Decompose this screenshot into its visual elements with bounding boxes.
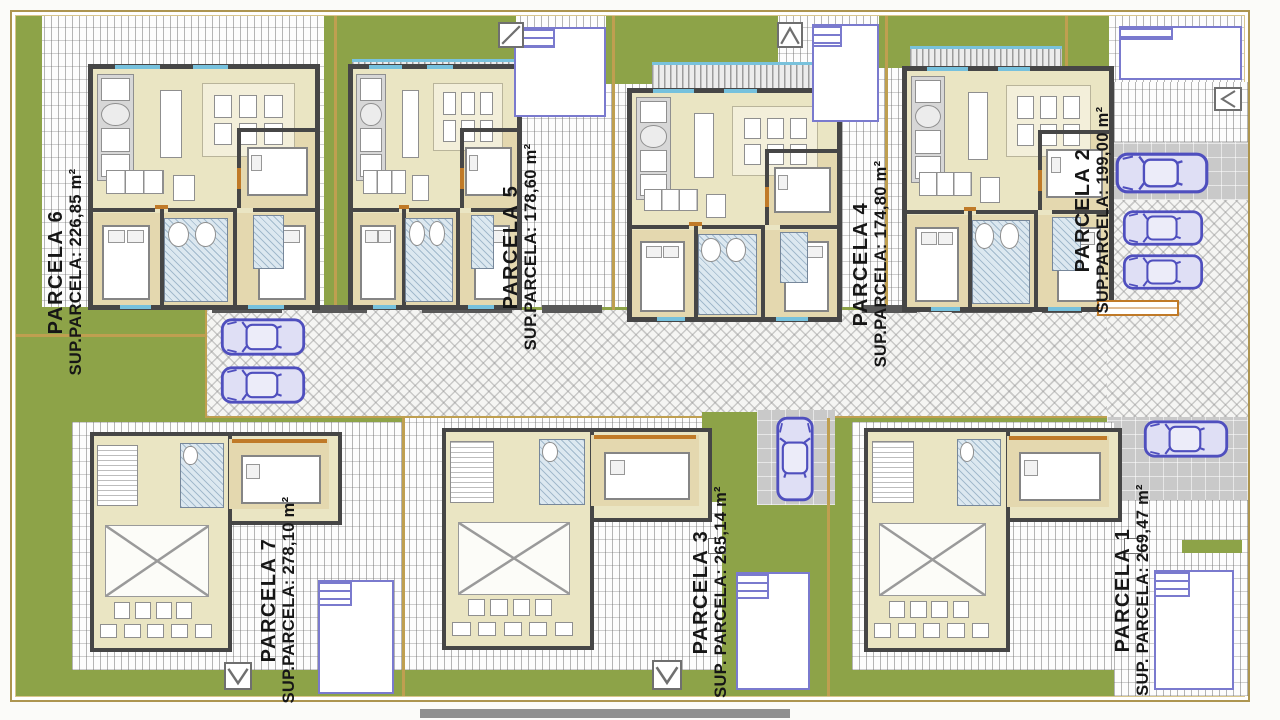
parcel-name: PARCELA 6: [45, 210, 67, 335]
bed: [247, 147, 309, 196]
door-lintel: [232, 439, 327, 443]
parcel-area: SUP.PARCELA: 226,85 m²: [67, 169, 85, 376]
kitchen-island: [160, 90, 182, 158]
parcel-boundary: [612, 16, 615, 316]
bed: [774, 167, 831, 214]
villa-floor-plan: [627, 88, 842, 322]
bathroom: [698, 234, 757, 314]
swimming-pool: [514, 27, 606, 117]
parcel-label-4: PARCELA 4 SUP.PARCELA: 174,80 m²: [848, 144, 892, 384]
window-sill: [776, 317, 809, 321]
site-plan-stage: PARCELA 6 SUP.PARCELA: 226,85 m² PARCELA…: [0, 0, 1280, 720]
swimming-pool: [736, 572, 810, 690]
dining-table: [732, 106, 818, 176]
bed: [640, 241, 685, 312]
parcel-area: SUP.PARCELA: 278,10 m²: [280, 497, 298, 704]
dining-chairs: [468, 599, 552, 616]
interior-wall: [160, 208, 164, 305]
interior-wall: [976, 210, 1039, 214]
villa-floor-plan: [88, 64, 320, 310]
interior-wall: [907, 210, 964, 214]
pool-steps: [814, 26, 842, 47]
pool-steps: [1121, 28, 1173, 40]
dining-table: [202, 83, 295, 157]
bathroom: [405, 218, 453, 303]
swimming-pool: [1119, 26, 1242, 80]
kitchen-counter: [356, 74, 385, 181]
lawn-patch: [760, 505, 832, 569]
window-sill: [468, 305, 494, 309]
parcel-area: SUP.PARCELA: 174,80 m²: [872, 161, 890, 368]
parcel-area: SUP.PARCELA: 199,00 m²: [1094, 107, 1112, 314]
lawn-patch: [1182, 540, 1242, 553]
utility-marker: [1214, 87, 1242, 111]
interior-wall: [1034, 210, 1038, 307]
dining-table: [433, 83, 502, 151]
bathroom: [164, 218, 228, 303]
lawn-strip-parcel5: [324, 86, 350, 316]
pergola: [910, 46, 1062, 66]
lawn-strip-left: [16, 16, 42, 316]
interior-wall: [456, 208, 460, 305]
parcel-name: PARCELA 4: [850, 202, 872, 327]
bathroom: [780, 232, 809, 283]
kitchen-counter: [911, 76, 945, 183]
window-sill: [115, 65, 159, 69]
door-lintel: [1009, 436, 1107, 440]
window-sill: [373, 305, 396, 309]
door-lintel: [237, 168, 241, 189]
villa-floor-plan: [442, 428, 704, 642]
interior-wall: [253, 208, 315, 212]
parcel-label-7: PARCELA 7 SUP.PARCELA: 278,10 m²: [256, 480, 300, 720]
parcel-label-5: PARCELA 5 SUP.PARCELA: 178,60 m²: [498, 127, 542, 367]
parcel-label-2: PARCELA 2 SUP.PARCELA: 199,00 m²: [1070, 90, 1114, 330]
coffee-table: [173, 175, 195, 201]
bed: [604, 452, 689, 501]
window-sill: [193, 65, 229, 69]
parcel-area: SUP. PARCELA: 265,14 m²: [712, 486, 730, 698]
sofa: [919, 172, 972, 195]
door-lintel: [689, 222, 701, 226]
coffee-table: [980, 177, 1000, 203]
parcel-label-6: PARCELA 6 SUP.PARCELA: 226,85 m²: [43, 152, 87, 392]
sofa: [363, 170, 406, 193]
kitchen-island: [968, 92, 988, 160]
utility-marker: [498, 22, 524, 48]
parcel-name: PARCELA 2: [1072, 148, 1094, 273]
kitchen-island: [402, 90, 419, 158]
window-sill: [998, 67, 1030, 71]
door-lintel: [155, 205, 168, 209]
utility-marker: [224, 662, 252, 690]
sofa: [644, 189, 697, 211]
coffee-table: [706, 194, 726, 218]
car-top-view: [766, 416, 824, 502]
dining-chairs: [114, 602, 192, 619]
window-sill: [724, 89, 757, 93]
bathroom: [972, 220, 1031, 305]
door-lintel: [460, 168, 464, 189]
interior-wall: [168, 208, 237, 212]
road-edge-offcut: [420, 709, 790, 718]
dining-chairs: [889, 601, 969, 618]
patio-skylight: [458, 522, 570, 595]
parcel-boundary: [827, 418, 830, 696]
window-sill: [369, 65, 402, 69]
door-lintel: [964, 207, 976, 211]
parcel-name: PARCELA 7: [258, 538, 280, 663]
patio-skylight: [105, 525, 209, 597]
interior-wall: [409, 208, 460, 212]
door-lintel: [399, 205, 409, 209]
window-sill: [653, 89, 694, 93]
parcel-area: SUP. PARCELA: 269,47 m²: [1134, 484, 1152, 696]
kitchen-island: [694, 113, 714, 178]
interior-wall: [237, 128, 315, 132]
swimming-pool: [318, 580, 394, 694]
bathroom: [180, 443, 223, 509]
car-top-view: [210, 317, 316, 357]
bed: [102, 225, 150, 300]
door-lintel: [594, 435, 696, 439]
coffee-table: [412, 175, 429, 201]
villa-floor-plan: [348, 64, 522, 310]
door-lintel: [1038, 170, 1042, 191]
window-sill: [120, 305, 151, 309]
car-top-view: [210, 365, 316, 405]
wall-segment: [542, 305, 602, 313]
patio-skylight: [879, 523, 986, 596]
kitchen-counter: [97, 74, 134, 181]
bathroom: [957, 439, 1002, 506]
interior-wall: [93, 208, 155, 212]
interior-wall: [233, 208, 237, 305]
sofa: [106, 170, 164, 193]
window-sill: [248, 305, 284, 309]
interior-wall: [702, 225, 766, 229]
villa-floor-plan: [864, 428, 1114, 644]
bed: [360, 225, 397, 300]
central-road: [205, 310, 1107, 418]
window-sill: [427, 65, 453, 69]
kitchen-counter: [636, 97, 671, 199]
kitchen-cabinets: [452, 622, 573, 636]
interior-wall: [353, 208, 399, 212]
parcel-label-3: PARCELA 3 SUP. PARCELA: 265,14 m²: [688, 467, 732, 717]
car-top-view: [1130, 419, 1242, 459]
parcel-boundary: [402, 418, 405, 696]
kitchen-counter: [872, 441, 914, 503]
parcel-name: PARCELA 3: [690, 530, 712, 655]
bathroom: [539, 439, 586, 505]
parcel-area: SUP.PARCELA: 178,60 m²: [522, 144, 540, 351]
pool-steps: [320, 582, 352, 606]
parcel-label-1: PARCELA 1 SUP. PARCELA: 269,47 m²: [1110, 465, 1154, 715]
utility-marker: [652, 660, 682, 690]
utility-marker: [777, 22, 803, 48]
bed: [915, 227, 959, 302]
pool-steps: [1156, 572, 1190, 597]
door-lintel: [765, 187, 769, 207]
interior-wall: [765, 149, 837, 153]
parcel-name: PARCELA 5: [500, 185, 522, 310]
bathroom: [471, 215, 494, 269]
window-sill: [657, 317, 686, 321]
kitchen-counter: [450, 441, 494, 503]
kitchen-counter: [97, 445, 138, 506]
interior-wall: [761, 225, 765, 317]
interior-wall: [780, 225, 837, 229]
site-plan: PARCELA 6 SUP.PARCELA: 226,85 m² PARCELA…: [10, 10, 1250, 702]
bathroom: [253, 215, 284, 269]
swimming-pool: [1154, 570, 1234, 690]
pool-steps: [738, 574, 769, 599]
parcel-boundary: [334, 16, 337, 316]
swimming-pool: [812, 24, 879, 122]
window-sill: [931, 307, 959, 311]
parcel-name: PARCELA 1: [1112, 528, 1134, 653]
window-sill: [927, 67, 967, 71]
interior-wall: [632, 225, 689, 229]
kitchen-cabinets: [874, 623, 989, 637]
bed: [1019, 452, 1101, 501]
kitchen-cabinets: [100, 624, 212, 638]
